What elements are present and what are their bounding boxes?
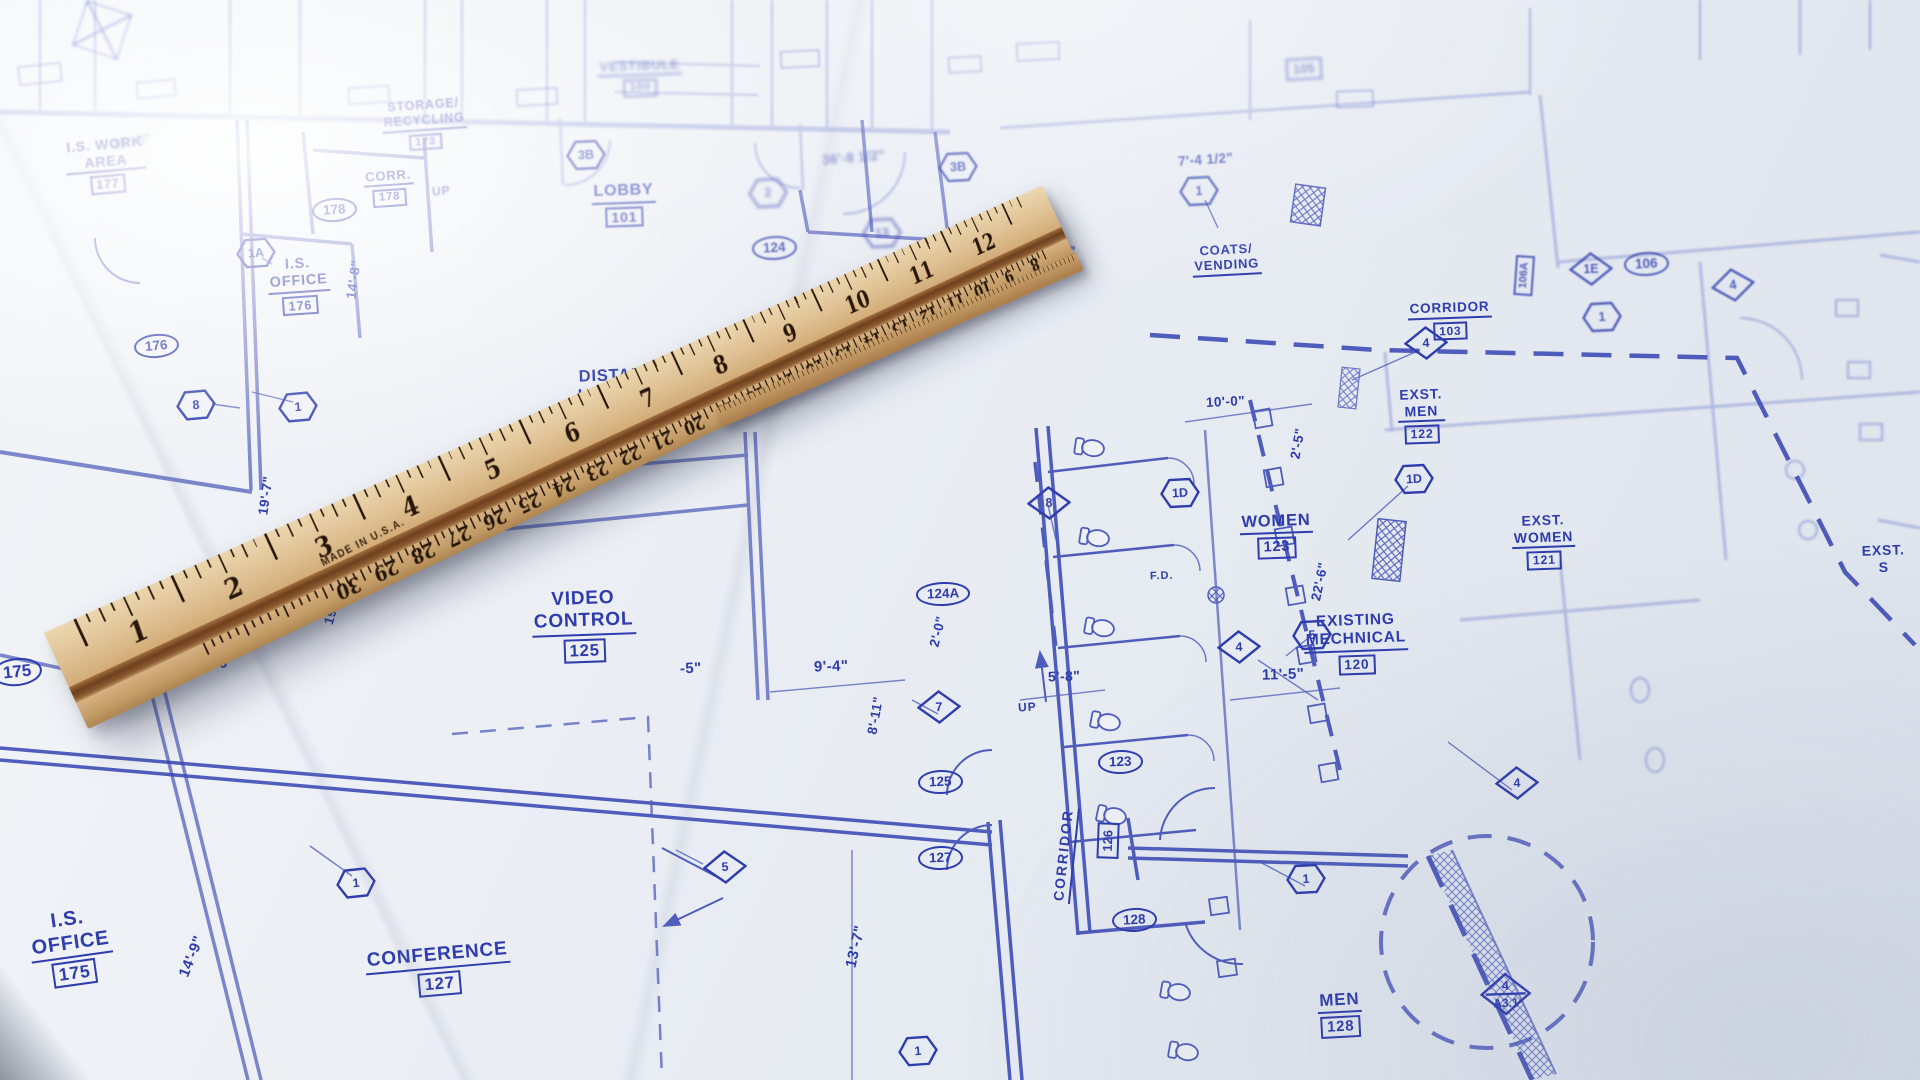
room-label-video-control: VIDEO CONTROL 125 <box>531 586 637 664</box>
section-marker: 4 A3.1 <box>1477 971 1535 1037</box>
keynote-hexagon: 1 <box>1581 301 1623 333</box>
room-label-exst-women: EXST. WOMEN 121 <box>1511 511 1576 571</box>
room-label-women: WOMEN 123 <box>1239 511 1314 560</box>
room-label-corr-178: CORR. 178 <box>363 166 415 208</box>
room-tag-box: 126 <box>1096 823 1119 859</box>
grid-tag <box>135 78 176 99</box>
keynote-hexagon: 1 <box>1178 175 1220 207</box>
keynote-diamond: 1E <box>1568 251 1613 287</box>
keynote-hexagon: 8 <box>175 388 217 421</box>
dimension: 11'-5" <box>1262 665 1305 683</box>
dimension: 5'-8" <box>1048 667 1081 684</box>
keynote-hexagon: 1 <box>897 1035 939 1068</box>
keynote-hexagon: 2 <box>747 177 789 209</box>
grid-tag <box>516 87 559 107</box>
keynote-hexagon: 1 <box>277 390 319 423</box>
keynote-hexagon: 1A <box>235 237 277 270</box>
room-label-vestibule: VESTIBULE 100 <box>597 57 682 99</box>
room-label-men: MEN 128 <box>1317 989 1364 1039</box>
keynote-hexagon: 5 <box>1291 619 1333 651</box>
keynote-diamond: 4 <box>1403 325 1448 361</box>
dimension: -5" <box>680 660 702 678</box>
grid-tag <box>1336 89 1375 108</box>
grid-tag <box>948 55 983 74</box>
room-tag-box: 105 <box>1285 57 1322 80</box>
floor-drain-label: F.D. <box>1150 570 1174 583</box>
photo-blueprint-with-ruler: I.S. WORK AREA 177 STORAGE/ RECYCLING 17… <box>0 0 1920 1080</box>
keynote-hexagon: 3B <box>565 139 607 171</box>
up-label: UP <box>432 183 452 198</box>
keynote-diamond: 4 <box>1216 629 1261 665</box>
room-label-lobby: LOBBY 101 <box>591 181 657 229</box>
keynote-hexagon: 1D <box>1393 463 1435 495</box>
dimension: 10'-0" <box>1206 393 1246 410</box>
keynote-hexagon: 1 <box>335 866 378 900</box>
room-tag-box: 106A <box>1513 255 1535 297</box>
room-label-exst-s: EXST. S <box>1859 541 1907 576</box>
room-label-coats-vending: COATS/ VENDING <box>1191 240 1262 277</box>
keynote-hexagon: 3B <box>937 151 979 183</box>
keynote-diamond: 4 <box>1709 265 1757 305</box>
keynote-diamond: 8 <box>1026 485 1071 521</box>
room-label-is-office-175: I.S. OFFICE 175 <box>25 903 117 992</box>
keynote-hexagon: 1D <box>1159 477 1201 509</box>
room-label-storage-recycling: STORAGE/ RECYCLING 173 <box>380 95 468 153</box>
dimension: 9'-4" <box>814 657 849 675</box>
grid-tag <box>1016 41 1061 62</box>
up-label: UP <box>1018 700 1037 715</box>
keynote-diamond: 4 <box>1494 765 1539 801</box>
plan-faint-lines <box>0 0 1920 772</box>
keynote-diamond: 7 <box>916 689 961 725</box>
keynote-hexagon: 13 <box>861 217 903 249</box>
keynote-hexagon: 1 <box>1285 863 1327 895</box>
grid-tag <box>780 49 821 69</box>
room-label-exst-men: EXST. MEN 122 <box>1397 385 1446 444</box>
keynote-diamond: 5 <box>702 849 748 885</box>
